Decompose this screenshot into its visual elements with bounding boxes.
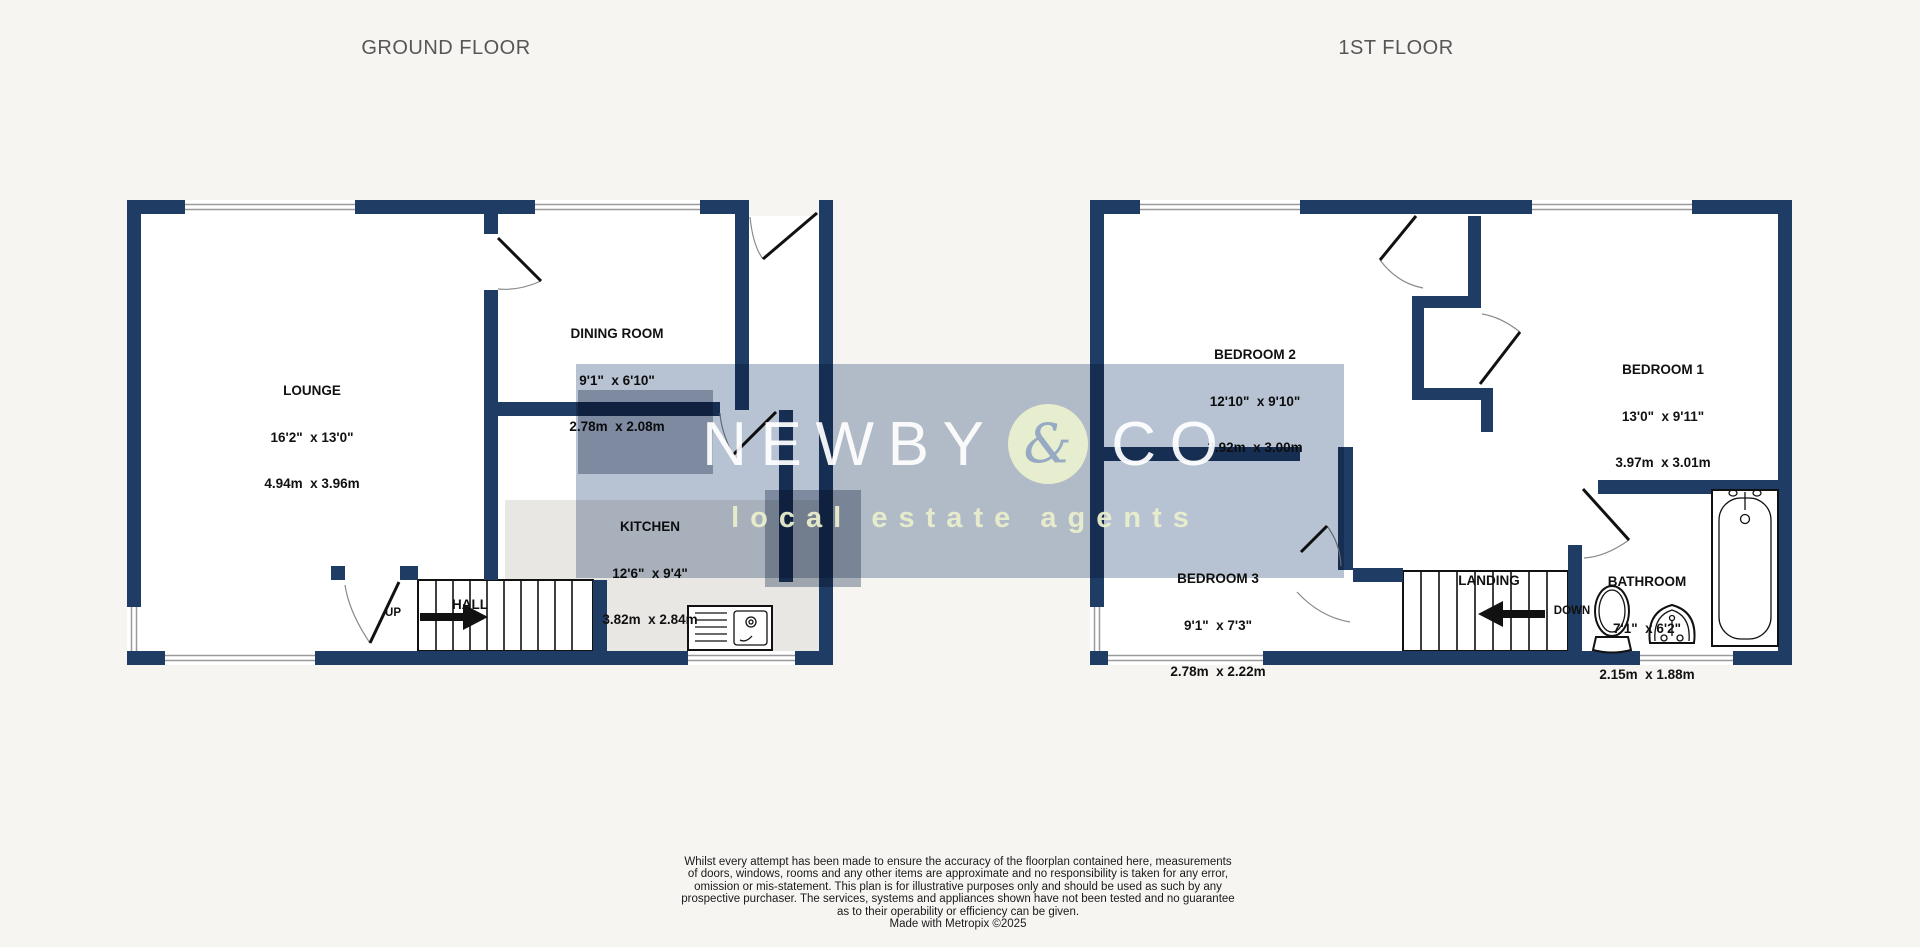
window (1532, 200, 1692, 214)
window (185, 200, 355, 214)
metropix-credit: Made with Metropix ©2025 (608, 918, 1308, 930)
room-name: BEDROOM 1 (1615, 362, 1710, 378)
window (535, 200, 700, 214)
front-door-opening (749, 198, 819, 216)
room-dims-imperial: 13'0" x 9'11" (1615, 409, 1710, 425)
room-dims-metric: 2.15m x 1.88m (1599, 667, 1694, 683)
disclaimer-line: Whilst every attempt has been made to en… (608, 856, 1308, 868)
cupboard-wall (1412, 296, 1424, 400)
landing-wall-stub (1353, 568, 1403, 582)
cupboard-wall (1468, 216, 1481, 308)
room-name: BATHROOM (1599, 574, 1694, 590)
down-label: DOWN (1554, 604, 1590, 620)
disclaimer-line: prospective purchaser. The services, sys… (608, 893, 1308, 905)
room-name: LOUNGE (264, 383, 359, 399)
floorplan-page: GROUND FLOOR 1ST FLOOR LOUNGE 16'2" x 13… (0, 0, 1920, 947)
room-dims-imperial: 7'1" x 6'2" (1599, 621, 1694, 637)
first-floor-title: 1ST FLOOR (1338, 37, 1453, 60)
lounge-dining-wall (484, 290, 498, 580)
cupboard-wall (1412, 388, 1493, 400)
landing-label: LANDING (1458, 573, 1520, 589)
window (1090, 607, 1104, 651)
cupboard-wall (1481, 388, 1493, 432)
window (1140, 200, 1300, 214)
window (165, 651, 315, 665)
room-name: BEDROOM 2 (1207, 347, 1302, 363)
disclaimer-line: as to their operability or efficiency ca… (608, 906, 1308, 918)
landing-bathroom-wall (1568, 545, 1582, 651)
up-label: UP (385, 606, 401, 622)
window (688, 651, 795, 665)
room-dims-imperial: 9'1" x 7'3" (1170, 618, 1265, 634)
watermark-band-shadow (578, 390, 713, 474)
disclaimer: Whilst every attempt has been made to en… (608, 856, 1308, 930)
room-dims-metric: 2.78m x 2.22m (1170, 664, 1265, 680)
room-dims-imperial: 16'2" x 13'0" (264, 430, 359, 446)
lounge-label: LOUNGE 16'2" x 13'0" 4.94m x 3.96m (264, 352, 359, 523)
window (127, 607, 141, 651)
room-dims-metric: 3.97m x 3.01m (1615, 455, 1710, 471)
ground-floor-title: GROUND FLOOR (361, 37, 530, 60)
room-dims-metric: 3.82m x 2.84m (602, 612, 697, 628)
room-name: DINING ROOM (569, 326, 664, 342)
watermark-band-shadow (765, 490, 861, 587)
bedroom1-label: BEDROOM 1 13'0" x 9'11" 3.97m x 3.01m (1615, 331, 1710, 502)
disclaimer-line: omission or mis-statement. This plan is … (608, 881, 1308, 893)
room-dims-metric: 4.94m x 3.96m (264, 476, 359, 492)
hall-label: HALL (452, 597, 488, 613)
bathtub (1712, 490, 1778, 646)
disclaimer-line: of doors, windows, rooms and any other i… (608, 868, 1308, 880)
bathroom-label: BATHROOM 7'1" x 6'2" 2.15m x 1.88m (1599, 543, 1694, 714)
kitchen-sink (688, 606, 772, 650)
dining-wall-stub (484, 214, 498, 234)
